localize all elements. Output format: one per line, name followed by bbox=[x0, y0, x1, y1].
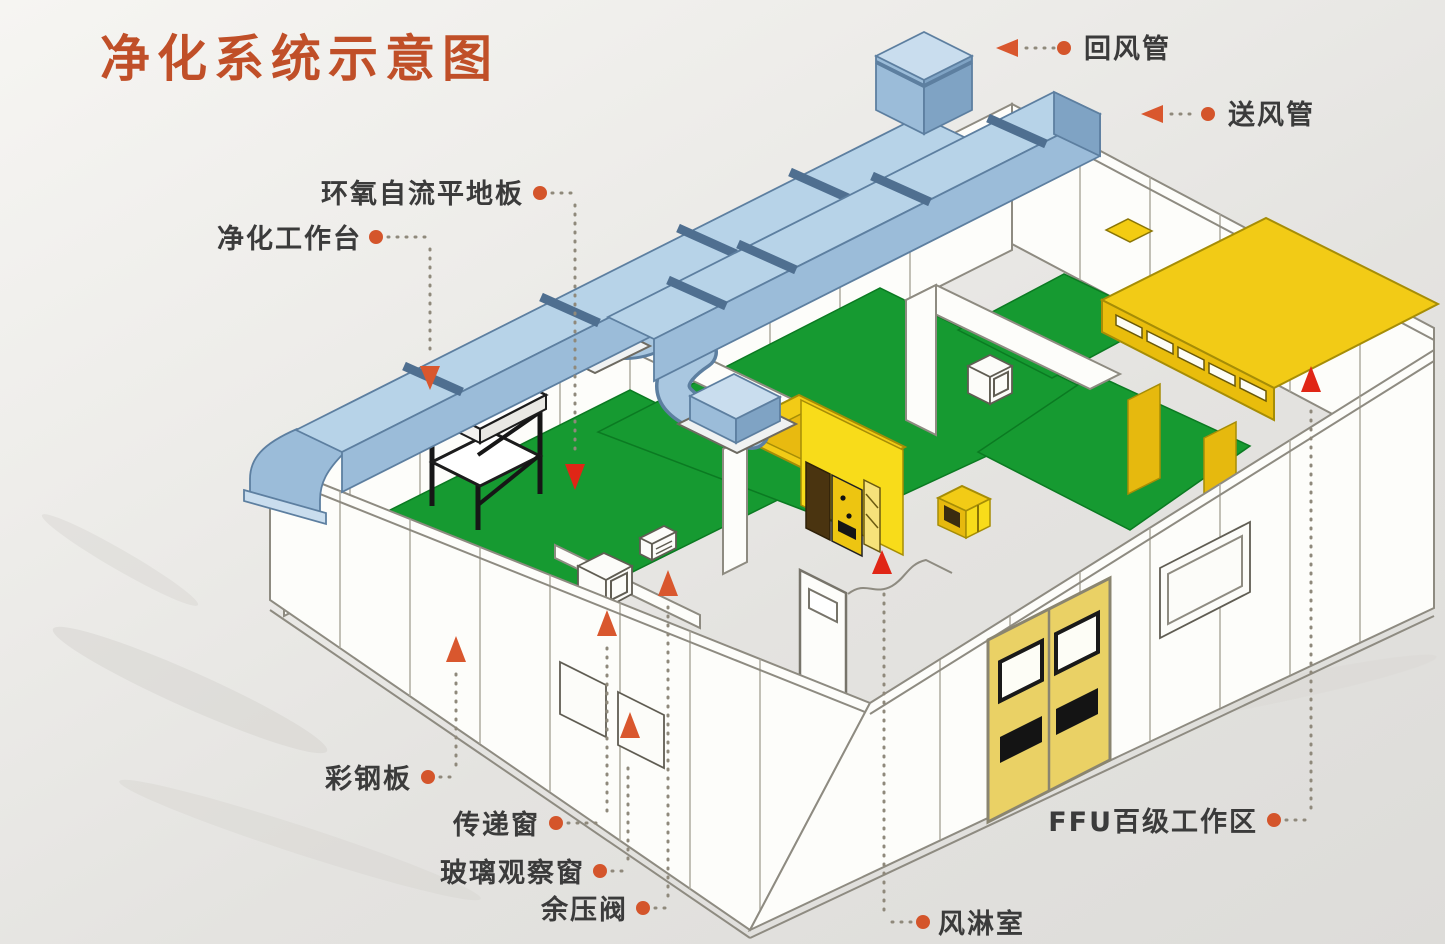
curved-wall-cut bbox=[848, 560, 952, 594]
leader-dot-icon bbox=[1201, 107, 1215, 121]
leader-dot-icon bbox=[593, 864, 607, 878]
leader-dot-icon bbox=[636, 901, 650, 915]
pointer-up-icon bbox=[658, 570, 678, 596]
leader-dot-icon bbox=[916, 915, 930, 929]
label-color-steel-panel: 彩钢板 bbox=[325, 764, 412, 795]
schematic-canvas: 净化系统示意图 回风管 送风管 环氧自流平地板 净化工作台 彩钢板 传递窗 玻璃… bbox=[0, 0, 1445, 944]
leader-return-duct bbox=[996, 39, 1071, 57]
leader-dot-icon bbox=[549, 816, 563, 830]
pointer-up-icon bbox=[872, 550, 892, 574]
label-supply-duct: 送风管 bbox=[1228, 100, 1315, 131]
label-epoxy-floor: 环氧自流平地板 bbox=[321, 178, 524, 210]
label-clean-workbench: 净化工作台 bbox=[217, 223, 362, 255]
pass-box bbox=[938, 486, 990, 538]
label-air-shower-room: 风淋室 bbox=[938, 908, 1025, 940]
leader-dot-icon bbox=[369, 230, 383, 244]
label-residual-pressure-valve: 余压阀 bbox=[540, 894, 628, 926]
leader-supply-duct bbox=[1141, 105, 1215, 123]
leader-dot-icon bbox=[421, 770, 435, 784]
leader-dot-icon bbox=[533, 186, 547, 200]
leader-dot-icon bbox=[1057, 41, 1071, 55]
leader-arrow-left-icon bbox=[1141, 105, 1163, 123]
page-title: 净化系统示意图 bbox=[100, 30, 499, 88]
wall-mounted-box bbox=[968, 355, 1012, 404]
label-glass-observation-window: 玻璃观察窗 bbox=[440, 857, 585, 889]
double-door bbox=[988, 578, 1110, 822]
cleanroom-schematic: 净化系统示意图 回风管 送风管 环氧自流平地板 净化工作台 彩钢板 传递窗 玻璃… bbox=[0, 0, 1445, 944]
label-return-duct: 回风管 bbox=[1084, 34, 1171, 65]
label-transfer-window: 传递窗 bbox=[452, 809, 540, 841]
leader-arrow-left-icon bbox=[996, 39, 1018, 57]
leader-dot-icon bbox=[1267, 813, 1281, 827]
ffu-support-panel bbox=[1128, 384, 1160, 494]
label-ffu-work-area: FFU百级工作区 bbox=[1048, 806, 1258, 838]
